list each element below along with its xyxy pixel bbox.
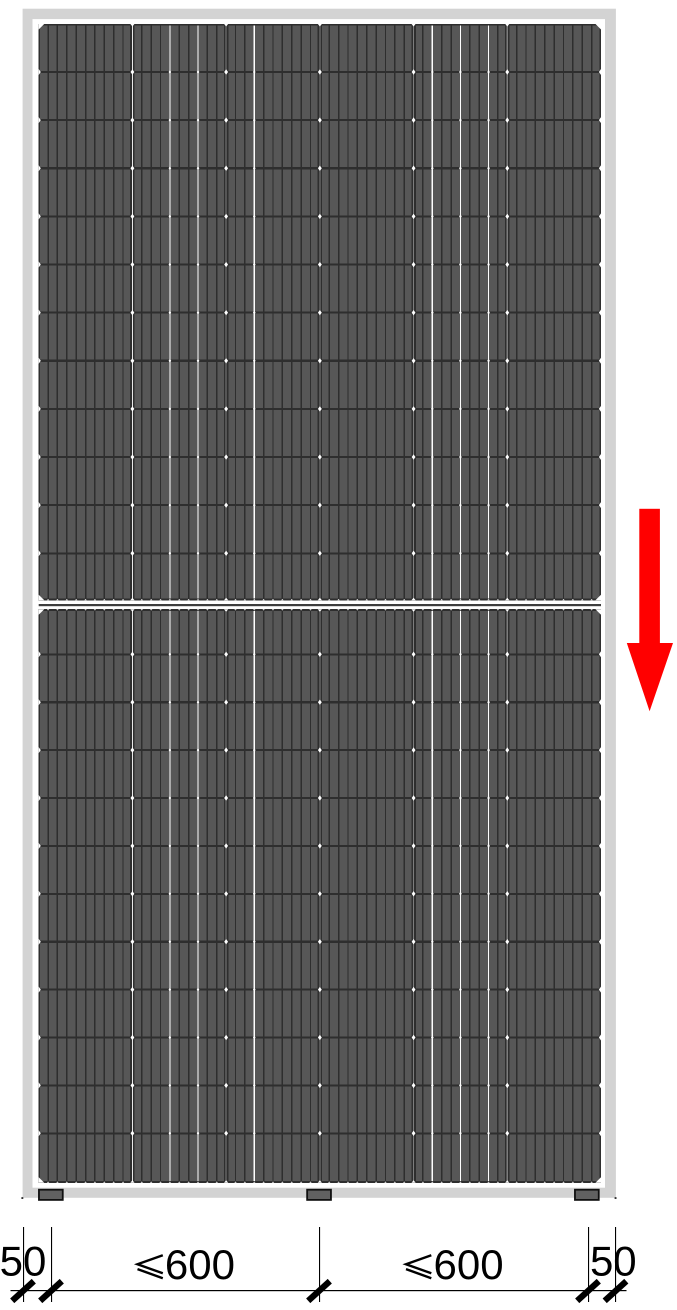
svg-text:600: 600: [165, 1241, 235, 1288]
svg-text:50: 50: [590, 1238, 637, 1285]
svg-text:50: 50: [0, 1238, 46, 1285]
svg-text:600: 600: [434, 1241, 504, 1288]
